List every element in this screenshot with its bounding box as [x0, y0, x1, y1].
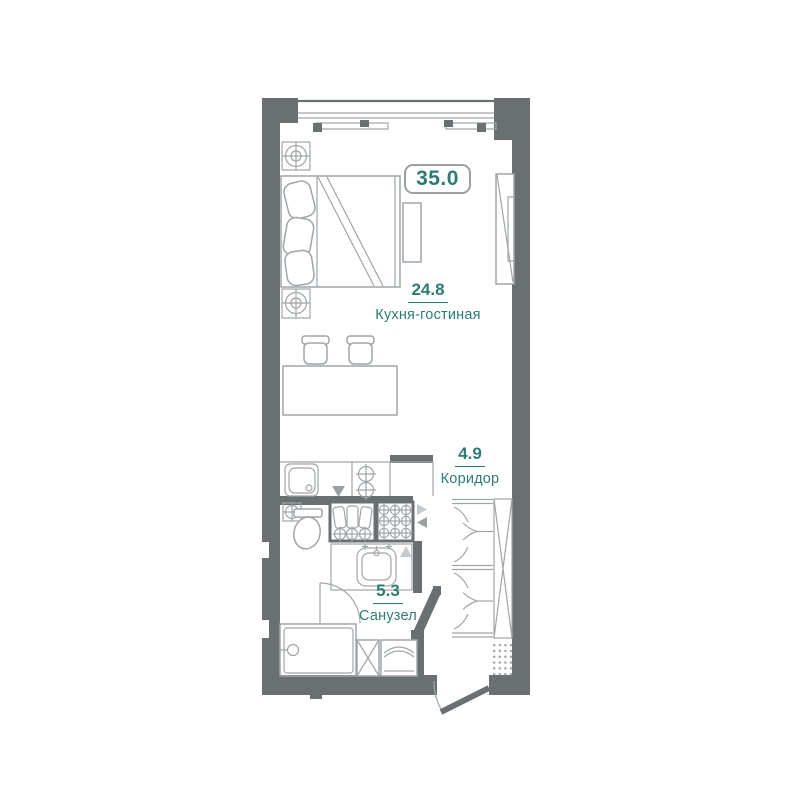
room-name: Санузел — [340, 608, 436, 624]
wardrobe — [452, 499, 512, 638]
arrow-marker-icon — [417, 504, 427, 515]
door-arc — [454, 507, 468, 522]
ceiling-light-icon — [282, 289, 310, 318]
total-area-value: 35.0 — [416, 167, 459, 191]
arrow-marker-icon — [417, 517, 427, 528]
room-name: Кухня-гостиная — [358, 307, 498, 323]
hatch-box-icon — [357, 640, 379, 676]
room-area: 4.9 — [455, 445, 485, 467]
door-arc — [454, 614, 468, 629]
stool-icon — [302, 336, 329, 364]
nightstand — [403, 203, 421, 262]
floor-plan: 35.0 24.8 Кухня-гостиная 4.9 Коридор 5.3… — [0, 0, 800, 800]
shoe-mat-dots — [492, 643, 514, 676]
entrance-door — [434, 681, 489, 712]
total-area-badge: 35.0 — [404, 164, 471, 194]
bathtub-icon — [280, 624, 356, 676]
door-arc — [454, 573, 468, 588]
room-area: 5.3 — [373, 582, 403, 604]
room-name: Коридор — [420, 471, 520, 487]
room-label-corridor: 4.9 Коридор — [420, 445, 520, 487]
room-label-bathroom: 5.3 Санузел — [340, 582, 436, 624]
door-arc — [454, 547, 468, 562]
hanger-icon — [463, 523, 493, 540]
dining-table — [283, 366, 397, 415]
vent-box-grid-icon — [377, 502, 413, 541]
arrow-marker-icon — [400, 546, 412, 557]
bathroom-sink-icon — [357, 544, 396, 587]
hob-icon — [356, 464, 376, 500]
room-label-kitchen-living: 24.8 Кухня-гостиная — [358, 281, 498, 323]
window — [298, 101, 494, 118]
vent-box-bottles-icon — [330, 502, 375, 542]
toilet-icon — [291, 509, 324, 552]
tv-panel-icon — [496, 174, 514, 284]
stool-icon — [347, 336, 374, 364]
pillow-icon — [282, 179, 317, 286]
balcony-track — [313, 120, 496, 132]
hanger-icon — [463, 593, 493, 610]
floor-plan-drawing — [0, 0, 800, 800]
washing-machine-icon — [381, 640, 417, 676]
arrow-marker-icon — [332, 486, 345, 497]
bed — [281, 176, 400, 287]
ceiling-light-icon — [282, 142, 310, 170]
kitchen-sink-icon — [285, 464, 318, 496]
room-area: 24.8 — [408, 281, 447, 303]
kitchen-counter — [280, 462, 433, 496]
